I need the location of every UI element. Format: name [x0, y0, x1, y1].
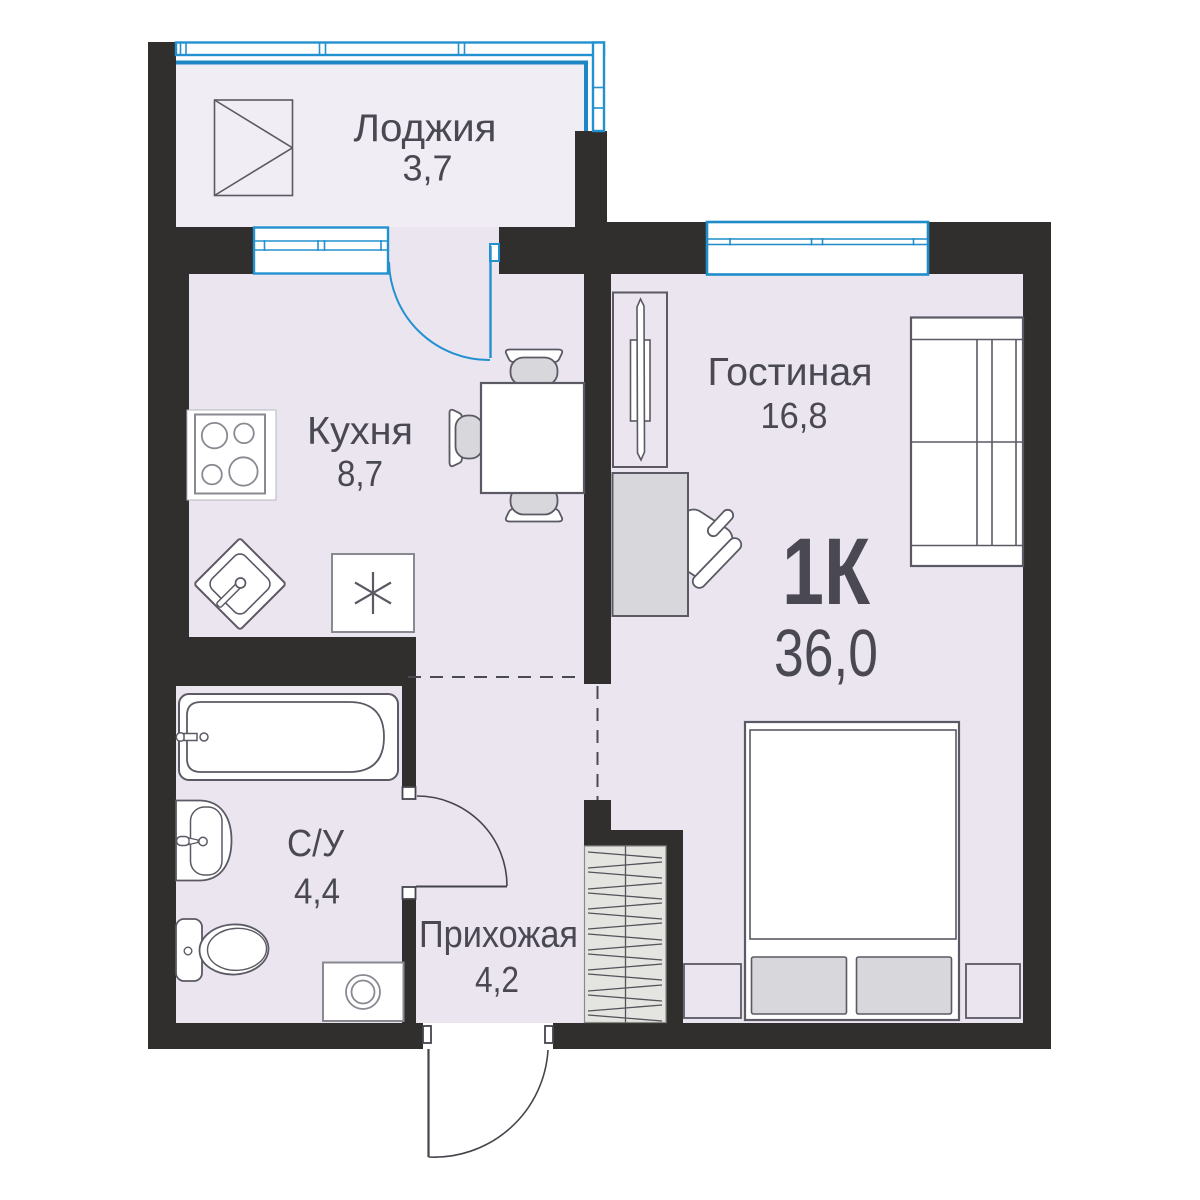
svg-text:Гостиная: Гостиная [708, 351, 873, 394]
svg-text:Кухня: Кухня [307, 410, 413, 453]
svg-text:16,8: 16,8 [761, 395, 828, 436]
svg-text:36,0: 36,0 [774, 616, 878, 691]
svg-text:8,7: 8,7 [337, 453, 383, 494]
svg-text:С/У: С/У [287, 823, 345, 865]
svg-text:1К: 1К [782, 519, 871, 625]
svg-text:3,7: 3,7 [403, 148, 453, 189]
svg-text:Лоджия: Лоджия [354, 107, 497, 150]
svg-text:4,2: 4,2 [475, 959, 519, 1000]
svg-text:4,4: 4,4 [294, 871, 340, 912]
svg-text:Прихожая: Прихожая [419, 914, 578, 956]
